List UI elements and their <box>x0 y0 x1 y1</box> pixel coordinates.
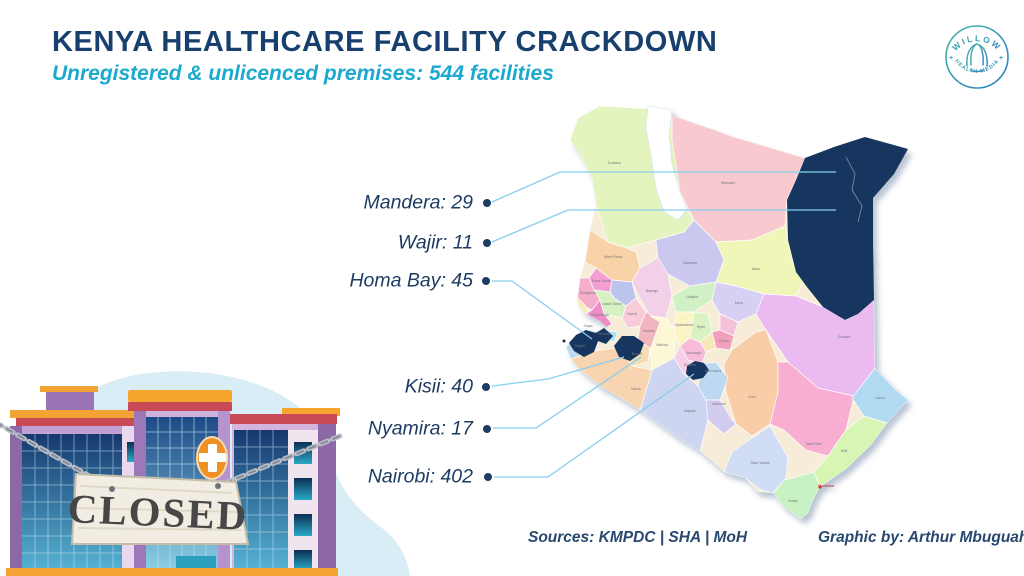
callout-dot-nairobi <box>484 473 492 481</box>
county-label-siaya: Siaya <box>584 324 593 328</box>
county-label-west-pokot: West Pokot <box>604 255 622 259</box>
county-label-nyeri: Nyeri <box>697 325 706 329</box>
county-label-lamu: Lamu <box>876 396 885 400</box>
logo-plus-right: + <box>999 55 1003 62</box>
logo-plus-left: + <box>949 55 953 62</box>
callout-dot-homa-bay <box>482 277 490 285</box>
county-label-murang-a: Murang'a <box>687 351 702 355</box>
county-label-migori: Migori <box>575 344 585 348</box>
callout-dot-mandera <box>483 199 491 207</box>
callout-label-homa-bay: Homa Bay: 45 <box>349 270 473 293</box>
county-label-marsabit: Marsabit <box>721 181 735 185</box>
callout-label-wajir: Wajir: 11 <box>398 232 473 255</box>
county-label-kajiado: Kajiado <box>684 409 696 413</box>
county-label-nakuru: Nakuru <box>656 343 668 347</box>
county-label-nandi: Nandi <box>627 312 637 316</box>
county-label-garissa: Garissa <box>838 335 850 339</box>
callout-label-mandera: Mandera: 29 <box>364 192 474 215</box>
county-label-trans-nzoia: Trans Nzoia <box>591 279 610 283</box>
closed-hospital-illustration: CLOSED <box>0 358 430 576</box>
county-label-nyandarua: Nyandarua <box>675 323 693 327</box>
medical-cross-badge <box>197 437 227 479</box>
county-label-kitui: Kitui <box>749 395 756 399</box>
page-title: KENYA HEALTHCARE FACILITY CRACKDOWN <box>52 26 717 59</box>
lake-island-dot <box>563 340 566 343</box>
county-label-tana-river: Tana River <box>805 442 823 446</box>
sources-text: Sources: KMPDC | SHA | MoH <box>528 529 747 547</box>
county-label-mombasa: Mombasa <box>818 484 834 488</box>
page-subtitle: Unregistered & unlicenced premises: 544 … <box>52 62 554 86</box>
county-label-turkana: Turkana <box>607 161 620 165</box>
county-label-meru: Meru <box>735 301 743 305</box>
closed-sign: CLOSED <box>67 474 249 544</box>
county-label-bungoma: Bungoma <box>580 291 595 295</box>
county-label-kakamega: Kakamega <box>591 313 608 317</box>
county-label-kwale: Kwale <box>788 499 798 503</box>
callout-dot-nyamira <box>483 425 491 433</box>
credit-text: Graphic by: Arthur Mbuguah <box>818 529 1024 547</box>
county-label-narok: Narok <box>631 387 641 391</box>
county-label-bomet: Bomet <box>632 352 642 356</box>
county-label-kisumu: Kisumu <box>598 332 610 336</box>
county-label-makueni: Makueni <box>712 402 726 406</box>
closed-sign-text: CLOSED <box>67 485 249 539</box>
county-label-embu: Embu <box>719 339 728 343</box>
infographic-canvas: KENYA HEALTHCARE FACILITY CRACKDOWN Unre… <box>0 0 1024 576</box>
county-label-taita-taveta: Taita Taveta <box>750 461 769 465</box>
hospital-base <box>6 568 338 576</box>
county-label-samburu: Samburu <box>683 261 698 265</box>
callout-dot-wajir <box>483 239 491 247</box>
willow-health-media-logo: WILLOW HEALTH MEDIA + + <box>942 22 1012 92</box>
county-label-machakos: Machakos <box>705 369 722 373</box>
kenya-county-map: TurkanaMarsabitWest PokotTrans NzoiaBung… <box>556 100 912 556</box>
county-label-laikipia: Laikipia <box>686 295 698 299</box>
county-label-baringo: Baringo <box>646 289 658 293</box>
county-label-isiolo: Isiolo <box>752 267 760 271</box>
county-label-uasin-gishu: Uasin Gishu <box>602 302 622 306</box>
county-label-kilifi: Kilifi <box>841 449 848 453</box>
callout-dot-kisii <box>482 383 490 391</box>
county-label-kiambu: Kiambu <box>684 363 696 367</box>
county-label-kericho: Kericho <box>643 329 655 333</box>
